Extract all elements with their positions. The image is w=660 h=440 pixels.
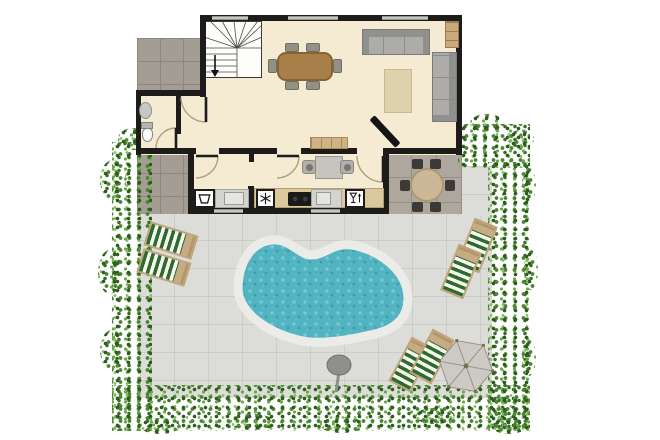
swimming-pool bbox=[225, 222, 425, 354]
laundry-sink bbox=[224, 192, 244, 205]
corner-shelf bbox=[445, 21, 459, 48]
patio-chair bbox=[445, 180, 455, 191]
door-kitchen-left bbox=[277, 156, 299, 178]
patio-chair bbox=[430, 202, 441, 212]
kitchen-table bbox=[315, 156, 343, 179]
patio-chair bbox=[412, 202, 423, 212]
dining-chair bbox=[285, 43, 299, 52]
sofa bbox=[362, 29, 430, 55]
door-wc bbox=[156, 128, 176, 148]
toilet bbox=[142, 128, 153, 142]
dining-chair bbox=[268, 59, 277, 73]
door-kitchen-right bbox=[357, 156, 383, 182]
rug bbox=[384, 69, 412, 113]
freezer bbox=[256, 189, 275, 208]
washing-machine bbox=[194, 189, 215, 208]
door-hall bbox=[181, 97, 206, 122]
dish-icon bbox=[348, 191, 363, 206]
door-laundry bbox=[196, 156, 218, 178]
patio-chair bbox=[400, 180, 410, 191]
floor-plan-canvas bbox=[0, 0, 660, 440]
stove bbox=[288, 192, 312, 206]
patio-chair bbox=[412, 159, 423, 169]
patio-chair bbox=[430, 159, 441, 169]
parasol bbox=[437, 337, 495, 395]
snow-icon bbox=[258, 191, 273, 206]
dining-table bbox=[277, 52, 333, 81]
dining-chair bbox=[285, 81, 299, 90]
dining-chair bbox=[306, 43, 320, 52]
sideboard bbox=[310, 137, 348, 149]
patio-table bbox=[410, 168, 444, 202]
dining-chair bbox=[306, 81, 320, 90]
dishwasher bbox=[345, 189, 365, 208]
outdoor-shower bbox=[325, 354, 353, 394]
wash-basin bbox=[139, 102, 152, 119]
sofa-2 bbox=[432, 52, 457, 122]
kitchen-chair bbox=[302, 160, 316, 174]
dining-chair bbox=[333, 59, 342, 73]
kitchen-sink bbox=[316, 192, 331, 205]
washer-icon bbox=[197, 191, 212, 206]
kitchen-chair bbox=[340, 160, 354, 174]
